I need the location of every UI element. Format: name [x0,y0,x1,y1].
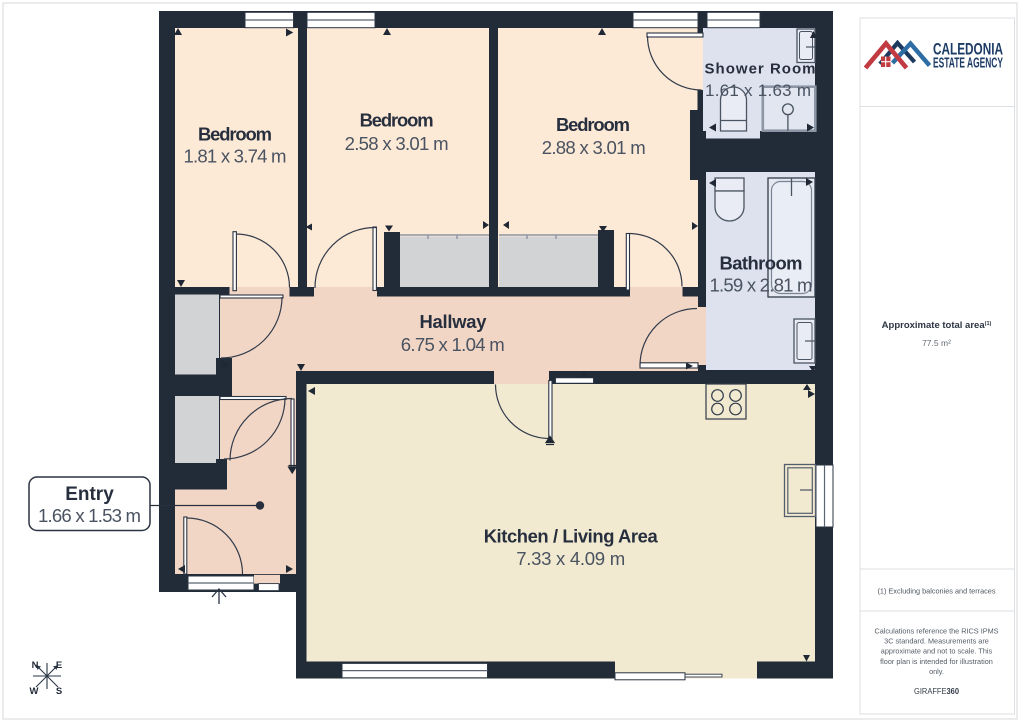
svg-text:77.5 m²: 77.5 m² [922,338,951,348]
svg-text:floor plan is intended for ill: floor plan is intended for illustration [880,657,993,666]
svg-text:Bedroom: Bedroom [360,110,434,131]
svg-text:Bathroom: Bathroom [720,253,803,274]
svg-text:GIRAFFE360: GIRAFFE360 [914,686,959,696]
svg-text:Bedroom: Bedroom [198,123,272,144]
svg-text:S: S [56,686,62,697]
svg-text:1.59 x 2.81 m: 1.59 x 2.81 m [710,275,813,296]
svg-text:only.: only. [929,667,944,676]
svg-text:(1) Excluding balconies and te: (1) Excluding balconies and terraces [877,587,995,596]
svg-text:1.61 x 1.63 m: 1.61 x 1.63 m [705,81,811,100]
svg-text:Bedroom: Bedroom [556,114,630,135]
svg-text:Shower Room: Shower Room [705,61,816,78]
svg-text:Kitchen / Living Area: Kitchen / Living Area [484,526,659,547]
svg-text:1.66 x 1.53 m: 1.66 x 1.53 m [38,505,141,526]
svg-text:6.75 x 1.04 m: 6.75 x 1.04 m [401,334,505,355]
svg-text:3C standard. Measurements are: 3C standard. Measurements are [884,637,989,646]
svg-text:Approximate total area(1): Approximate total area(1) [882,320,992,331]
svg-text:W: W [30,686,39,697]
svg-text:E: E [56,660,62,671]
svg-text:N: N [32,660,39,671]
svg-text:1.81 x 3.74 m: 1.81 x 3.74 m [184,146,287,167]
svg-text:ESTATE AGENCY: ESTATE AGENCY [933,56,1003,72]
svg-text:Hallway: Hallway [420,311,488,332]
svg-text:approximate and not to scale.: approximate and not to scale. This [881,647,993,656]
svg-text:Calculations reference the RIC: Calculations reference the RICS IPMS [874,627,998,636]
svg-text:2.58 x 3.01 m: 2.58 x 3.01 m [345,133,449,154]
svg-text:7.33 x 4.09 m: 7.33 x 4.09 m [516,548,625,569]
svg-text:2.88 x 3.01 m: 2.88 x 3.01 m [542,137,646,158]
svg-text:Entry: Entry [65,484,114,505]
